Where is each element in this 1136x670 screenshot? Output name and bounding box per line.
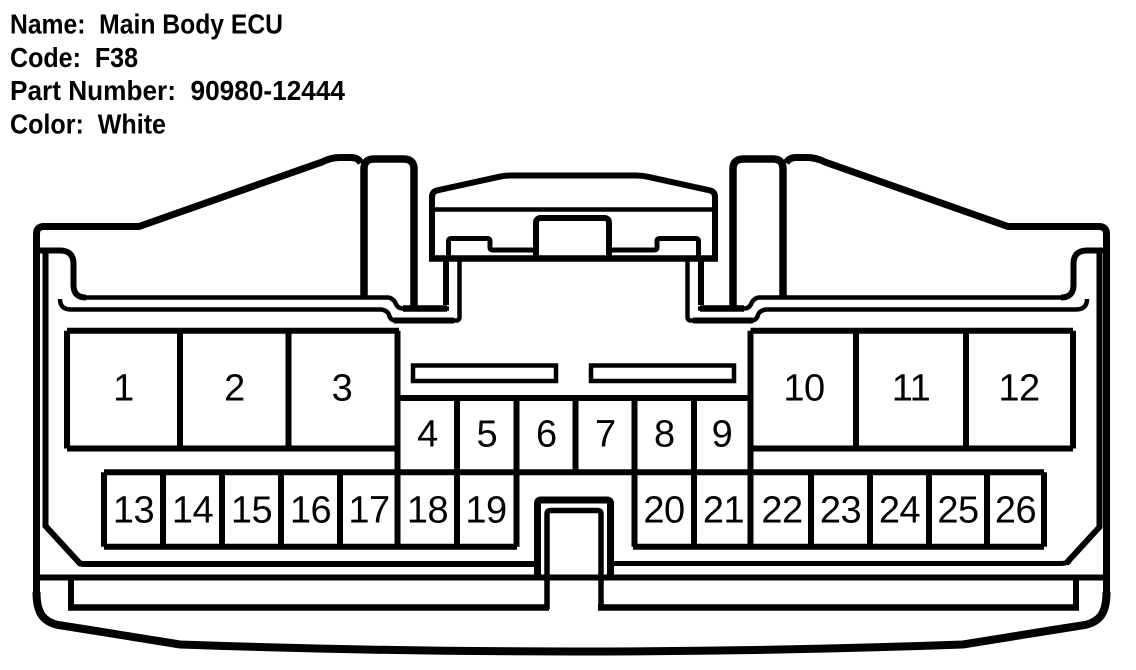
svg-text:19: 19 <box>465 490 506 532</box>
svg-text:12: 12 <box>998 368 1039 410</box>
svg-text:18: 18 <box>407 490 448 532</box>
svg-text:Code: F38: Code: F38 <box>10 42 138 73</box>
svg-text:6: 6 <box>536 414 557 456</box>
svg-text:16: 16 <box>290 490 331 532</box>
svg-text:4: 4 <box>417 414 438 456</box>
svg-text:24: 24 <box>879 490 921 532</box>
svg-text:Name: Main Body ECU: Name: Main Body ECU <box>10 9 283 40</box>
svg-text:22: 22 <box>761 490 802 532</box>
svg-text:5: 5 <box>476 414 497 456</box>
svg-text:10: 10 <box>783 368 824 410</box>
svg-text:3: 3 <box>332 368 353 410</box>
svg-text:26: 26 <box>995 490 1036 532</box>
svg-text:25: 25 <box>937 490 978 532</box>
svg-text:11: 11 <box>892 368 930 410</box>
svg-text:14: 14 <box>172 490 214 532</box>
svg-text:17: 17 <box>348 490 389 532</box>
svg-text:1: 1 <box>113 368 134 410</box>
svg-text:Color: White: Color: White <box>10 108 166 139</box>
svg-text:21: 21 <box>703 490 744 532</box>
svg-text:2: 2 <box>224 368 245 410</box>
svg-text:20: 20 <box>643 490 684 532</box>
svg-text:13: 13 <box>113 490 154 532</box>
svg-text:Part Number: 90980-12444: Part Number: 90980-12444 <box>10 75 346 106</box>
svg-text:9: 9 <box>712 414 733 456</box>
svg-text:8: 8 <box>654 414 675 456</box>
svg-text:23: 23 <box>820 490 861 532</box>
svg-text:15: 15 <box>231 490 272 532</box>
svg-text:7: 7 <box>595 414 616 456</box>
